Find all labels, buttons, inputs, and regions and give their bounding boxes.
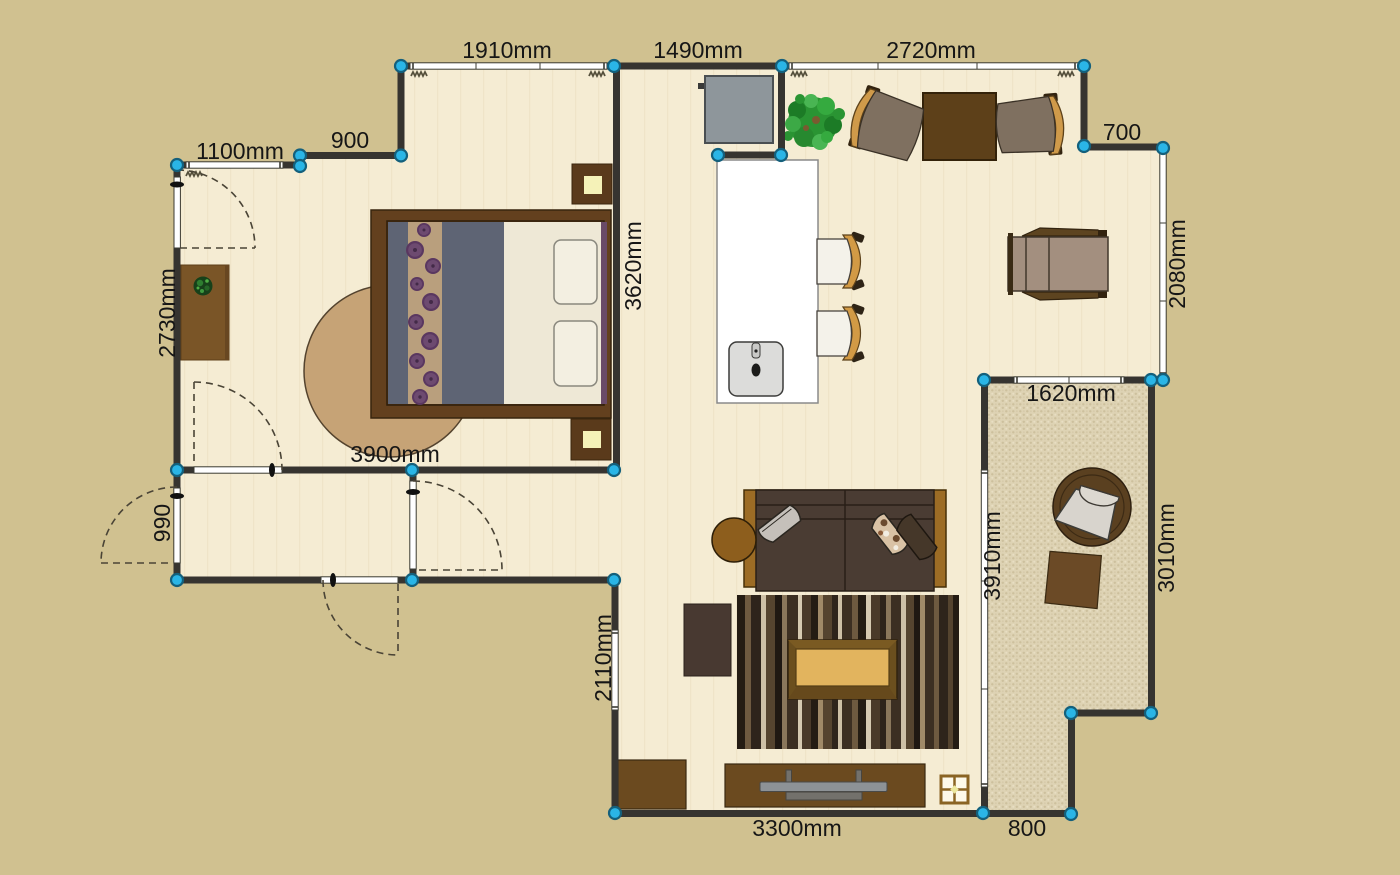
svg-text:3300mm: 3300mm xyxy=(752,815,841,841)
svg-text:3010mm: 3010mm xyxy=(1153,503,1179,592)
svg-text:2730mm: 2730mm xyxy=(154,268,180,357)
svg-text:3900mm: 3900mm xyxy=(350,441,439,467)
svg-text:900: 900 xyxy=(331,127,369,153)
svg-text:2080mm: 2080mm xyxy=(1164,219,1190,308)
svg-text:1490mm: 1490mm xyxy=(653,37,742,63)
svg-text:2720mm: 2720mm xyxy=(886,37,975,63)
svg-text:700: 700 xyxy=(1103,119,1141,145)
svg-text:1100mm: 1100mm xyxy=(196,138,284,164)
svg-text:800: 800 xyxy=(1008,815,1046,841)
svg-text:1620mm: 1620mm xyxy=(1026,380,1115,406)
svg-text:3910mm: 3910mm xyxy=(979,511,1005,600)
svg-text:990: 990 xyxy=(149,504,175,542)
svg-text:2110mm: 2110mm xyxy=(590,614,616,702)
svg-text:3620mm: 3620mm xyxy=(620,221,646,310)
svg-text:1910mm: 1910mm xyxy=(462,37,551,63)
